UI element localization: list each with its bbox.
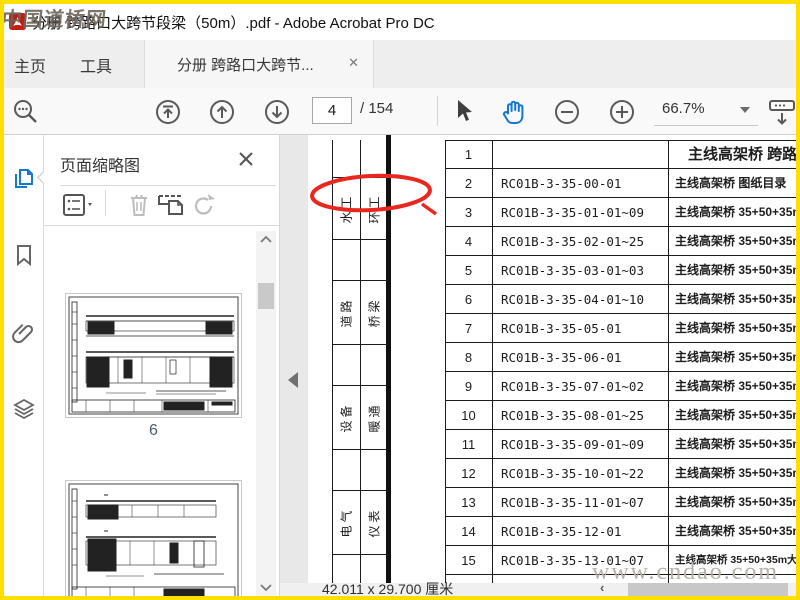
table-row: 2RC01B-3-35-00-01主线高架桥 图纸目录 — [445, 169, 796, 198]
drawing-code: RC01B-3-35-03-01~03 — [492, 256, 668, 285]
first-page-icon[interactable] — [154, 98, 182, 126]
previous-page-icon[interactable] — [208, 98, 236, 126]
row-number: 10 — [445, 401, 492, 430]
table-row: 8RC01B-3-35-06-01主线高架桥 35+50+35m大跨节段梁(B=… — [445, 343, 796, 372]
screenshot-frame: 分册 跨路口大跨节段梁（50m）.pdf - Adobe Acrobat Pro… — [0, 0, 800, 600]
tab-home[interactable]: 主页 — [14, 53, 46, 77]
panel-divider — [60, 185, 276, 186]
watermark-bottom: www.cndao.com — [592, 559, 779, 586]
table-row: 13RC01B-3-35-11-01~07主线高架桥 35+50+35m大跨节段… — [445, 488, 796, 517]
main-area: 页面缩略图 — [4, 135, 796, 596]
drawing-title: 主线高架桥 跨路口 — [668, 140, 796, 169]
watermark-top: 中国道桥网 — [4, 4, 109, 32]
zoom-in-icon[interactable] — [608, 98, 636, 126]
search-icon[interactable] — [12, 98, 40, 126]
panel-tools-divider — [105, 190, 106, 216]
nav-icon-strip — [4, 135, 44, 596]
page-thumbnails-icon[interactable] — [12, 167, 36, 191]
drawing-code: RC01B-3-35-08-01~25 — [492, 401, 668, 430]
tab-document[interactable]: 分册 跨路口大跨节... ✕ — [144, 40, 374, 88]
drawing-code: RC01B-3-35-00-01 — [492, 169, 668, 198]
drawing-code: RC01B-3-35-04-01~10 — [492, 285, 668, 314]
scroll-up-icon[interactable] — [260, 235, 272, 243]
delete-pages-icon — [128, 192, 150, 218]
thumbnail-page-number: 6 — [65, 422, 242, 440]
row-number: 9 — [445, 372, 492, 401]
table-row: 10RC01B-3-35-08-01~25主线高架桥 35+50+35m大跨节段… — [445, 401, 796, 430]
drawing-title: 主线高架桥 35+50+35m大跨节段梁(B=25m — [668, 227, 796, 256]
drawing-code: RC01B-3-35-11-01~07 — [492, 488, 668, 517]
table-row: 12RC01B-3-35-10-01~22主线高架桥 35+50+35m大跨节段… — [445, 459, 796, 488]
drawing-title: 主线高架桥 35+50+35m大跨节段梁(B=25m — [668, 488, 796, 517]
panel-divider-2 — [44, 225, 280, 226]
margin-label-left: 道路 — [332, 280, 360, 345]
bookmarks-icon[interactable] — [12, 243, 36, 267]
tab-tools[interactable]: 工具 — [80, 53, 112, 77]
drawing-title: 主线高架桥 35+50+35m大跨节段梁(B=25m — [668, 459, 796, 488]
table-row: 5RC01B-3-35-03-01~03主线高架桥 35+50+35m大跨节段梁… — [445, 256, 796, 285]
tab-close-icon[interactable]: ✕ — [348, 55, 359, 71]
row-number: 4 — [445, 227, 492, 256]
scroll-down-icon[interactable] — [260, 584, 272, 592]
table-row: 11RC01B-3-35-09-01~09主线高架桥 35+50+35m大跨节段… — [445, 430, 796, 459]
page-size-label: 42.011 x 29.700 厘米 — [322, 579, 453, 596]
table-row: 1主线高架桥 跨路口 — [445, 140, 796, 169]
table-row: 7RC01B-3-35-05-01主线高架桥 35+50+35m大跨节段梁(B=… — [445, 314, 796, 343]
drawing-code: RC01B-3-35-05-01 — [492, 314, 668, 343]
margin-label-right: 暖通 — [360, 385, 388, 450]
drawing-code: RC01B-3-35-10-01~22 — [492, 459, 668, 488]
drawing-title: 主线高架桥 35+50+35m大跨节段梁(B=25m — [668, 430, 796, 459]
row-number: 5 — [445, 256, 492, 285]
zoom-out-icon[interactable] — [553, 98, 581, 126]
drawing-code: RC01B-3-35-06-01 — [492, 343, 668, 372]
select-tool-icon[interactable] — [452, 98, 476, 124]
drawing-code: RC01B-3-35-09-01~09 — [492, 430, 668, 459]
hand-tool-icon[interactable] — [500, 98, 528, 126]
horizontal-scrollbar[interactable]: 42.011 x 29.700 厘米 ‹ — [280, 583, 796, 596]
margin-label-left: 电气 — [332, 490, 360, 555]
drawing-code: RC01B-3-35-02-01~25 — [492, 227, 668, 256]
row-number: 12 — [445, 459, 492, 488]
drawing-title: 主线高架桥 35+50+35m大跨节段梁(B=25m — [668, 285, 796, 314]
row-number: 1 — [445, 140, 492, 169]
rotate-pages-icon — [192, 192, 216, 218]
next-page-icon[interactable] — [263, 98, 291, 126]
drawing-title: 主线高架桥 35+50+35m大跨节段梁(B=25m — [668, 401, 796, 430]
row-number: 11 — [445, 430, 492, 459]
panel-title: 页面缩略图 — [60, 152, 140, 176]
margin-label-left: 设备 — [332, 385, 360, 450]
table-row: 3RC01B-3-35-01-01~09主线高架桥 35+50+35m大跨节段梁… — [445, 198, 796, 227]
row-number: 13 — [445, 488, 492, 517]
table-row: 4RC01B-3-35-02-01~25主线高架桥 35+50+35m大跨节段梁… — [445, 227, 796, 256]
row-number: 7 — [445, 314, 492, 343]
panel-scrollbar-thumb[interactable] — [258, 283, 274, 309]
table-row: 9RC01B-3-35-07-01~02主线高架桥 35+50+35m大跨节段梁… — [445, 372, 796, 401]
toolbar-divider — [437, 96, 438, 126]
page-thumbnail-7[interactable] — [65, 480, 242, 596]
drawing-code: RC01B-3-35-01-01~09 — [492, 198, 668, 227]
margin-label-right: 仪表 — [360, 490, 388, 555]
drawing-code: RC01B-3-35-07-01~02 — [492, 372, 668, 401]
row-number: 3 — [445, 198, 492, 227]
margin-label-right: 桥梁 — [360, 280, 388, 345]
document-pane: 水工环工道路桥梁设备暖通电气仪表 1主线高架桥 跨路口2RC01B-3-35-0… — [280, 135, 796, 596]
drawing-code — [492, 140, 668, 169]
tab-bar: 主页 工具 分册 跨路口大跨节... ✕ — [4, 40, 796, 88]
row-number: 8 — [445, 343, 492, 372]
zoom-level-control[interactable]: 66.7% — [654, 96, 758, 126]
page-thumbnail-6[interactable] — [65, 293, 242, 418]
page-count-label: / 154 — [360, 100, 393, 117]
insert-pages-icon[interactable] — [156, 192, 184, 218]
panel-close-icon[interactable] — [236, 149, 256, 169]
margin-label-left: 水工 — [332, 177, 360, 240]
row-number: 2 — [445, 169, 492, 198]
row-number: 15 — [445, 546, 492, 575]
panel-scrollbar[interactable] — [256, 231, 276, 596]
scroll-left-icon[interactable]: ‹ — [600, 580, 604, 595]
document-tab-label: 分册 跨路口大跨节... — [177, 54, 314, 75]
thumbnails-panel: 页面缩略图 — [44, 135, 280, 596]
row-number: 14 — [445, 517, 492, 546]
drawing-title: 主线高架桥 35+50+35m大跨节段梁(B=25m — [668, 343, 796, 372]
margin-label-right: 环工 — [360, 177, 388, 240]
thumbnail-options-icon[interactable] — [62, 192, 96, 218]
zoom-level-value: 66.7% — [662, 100, 705, 117]
drawing-title: 主线高架桥 图纸目录 — [668, 169, 796, 198]
chevron-down-icon — [740, 107, 750, 113]
drawing-title: 主线高架桥 35+50+35m大跨节段梁(B=25m — [668, 256, 796, 285]
table-row: 6RC01B-3-35-04-01~10主线高架桥 35+50+35m大跨节段梁… — [445, 285, 796, 314]
panel-collapse-icon[interactable] — [288, 372, 298, 388]
drawing-title: 主线高架桥 35+50+35m大跨节段梁(B=25m — [668, 198, 796, 227]
attachments-icon[interactable] — [12, 321, 36, 345]
drawing-title: 主线高架桥 35+50+35m大跨节段梁(B=25m — [668, 517, 796, 546]
drawing-title: 主线高架桥 35+50+35m大跨节段梁(B=25m — [668, 372, 796, 401]
drawing-title: 主线高架桥 35+50+35m大跨节段梁(B=25m — [668, 314, 796, 343]
page-number-input[interactable]: 4 — [312, 97, 352, 124]
toolbar-panel-icon[interactable] — [768, 98, 796, 128]
drawing-code: RC01B-3-35-12-01 — [492, 517, 668, 546]
row-number: 6 — [445, 285, 492, 314]
layers-icon[interactable] — [12, 397, 36, 421]
horizontal-scrollbar-thumb[interactable] — [628, 583, 788, 596]
main-toolbar: 4 / 154 66.7% — [4, 88, 796, 135]
table-row: 14RC01B-3-35-12-01主线高架桥 35+50+35m大跨节段梁(B… — [445, 517, 796, 546]
title-bar: 分册 跨路口大跨节段梁（50m）.pdf - Adobe Acrobat Pro… — [4, 4, 796, 40]
